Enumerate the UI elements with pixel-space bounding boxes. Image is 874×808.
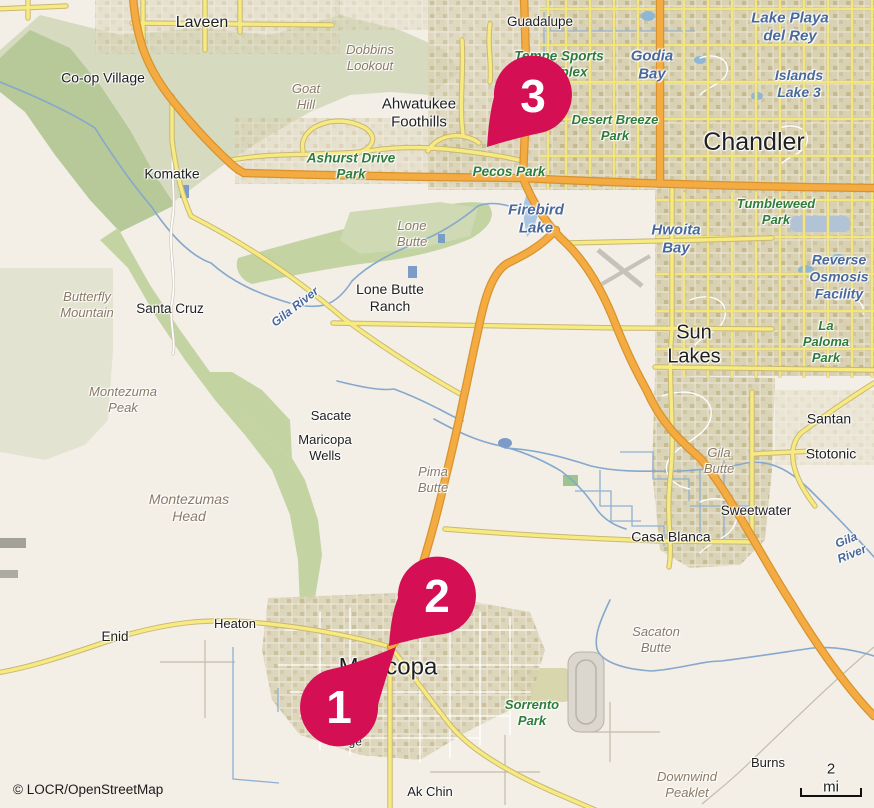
map-container[interactable]: Laveen Co-op Village Dobbins Lookout Goa… <box>0 0 874 808</box>
marker-number-3: 3 <box>520 70 546 122</box>
marker-2[interactable]: 2 <box>389 557 476 646</box>
marker-3[interactable]: 3 <box>487 56 572 147</box>
markers-layer: 1 2 3 <box>0 0 874 808</box>
marker-number-1: 1 <box>326 681 352 733</box>
marker-number-2: 2 <box>424 570 450 622</box>
marker-1[interactable]: 1 <box>300 647 396 746</box>
